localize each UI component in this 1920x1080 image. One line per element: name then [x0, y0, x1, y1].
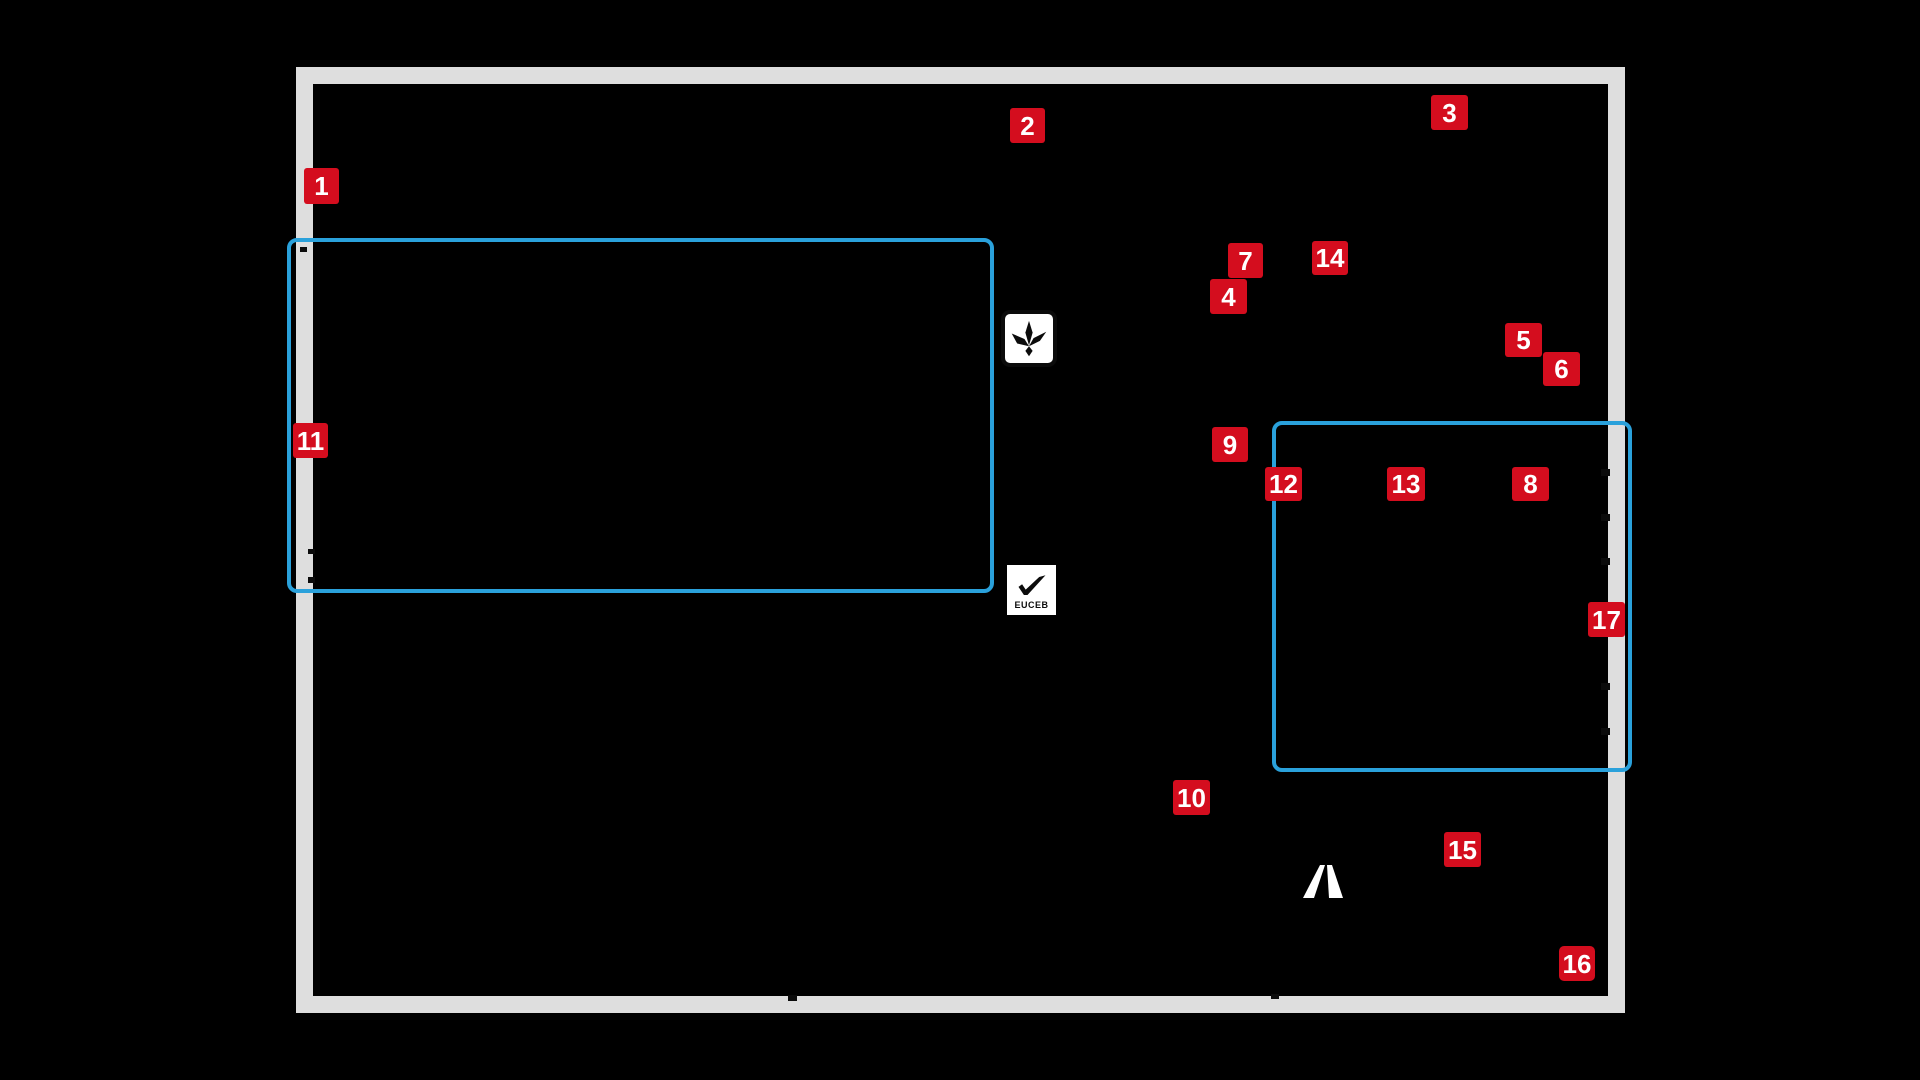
callout-badge-7: 7: [1228, 243, 1263, 278]
callout-badge-8: 8: [1512, 467, 1549, 501]
highlight-region-left: [287, 238, 994, 593]
leaf-certification-icon: [1001, 310, 1057, 367]
callout-badge-13: 13: [1387, 467, 1425, 501]
callout-badge-6: 6: [1543, 352, 1580, 386]
callout-badge-1: 1: [304, 168, 339, 204]
artifact-tick: [1271, 994, 1279, 999]
callout-badge-15: 15: [1444, 832, 1481, 867]
artifact-tick: [788, 995, 797, 1001]
euceb-label: EUCEB: [1014, 600, 1048, 610]
annotated-label-figure: EUCEB 1 2 3 4 5 6 7 8 9 10 11 12 13 14 1…: [0, 0, 1920, 1080]
callout-badge-9: 9: [1212, 427, 1248, 462]
callout-badge-11: 11: [293, 423, 328, 458]
letter-a-logo-mark: [1303, 865, 1343, 898]
callout-badge-12: 12: [1265, 467, 1302, 501]
callout-badge-2: 2: [1010, 108, 1045, 143]
callout-badge-17: 17: [1588, 602, 1625, 637]
callout-badge-4: 4: [1210, 279, 1247, 314]
callout-badge-3: 3: [1431, 95, 1468, 130]
callout-badge-16: 16: [1559, 946, 1595, 981]
callout-badge-14: 14: [1312, 241, 1348, 275]
highlight-region-right: [1272, 421, 1632, 772]
euceb-checkmark-icon: EUCEB: [1007, 565, 1056, 615]
callout-badge-10: 10: [1173, 780, 1210, 815]
callout-badge-5: 5: [1505, 323, 1542, 357]
